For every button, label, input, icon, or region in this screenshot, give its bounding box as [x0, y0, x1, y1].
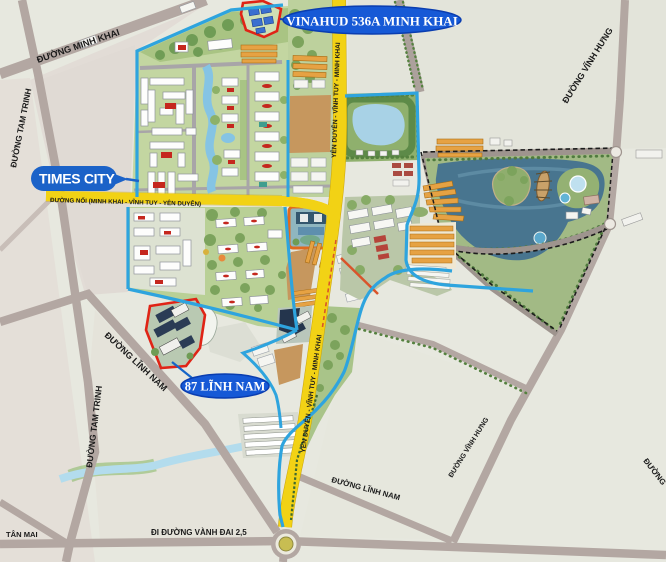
svg-text:VINAHUD 536A MINH KHAI: VINAHUD 536A MINH KHAI — [286, 14, 458, 29]
svg-text:ĐI ĐƯỜNG VÀNH ĐAI 2,5: ĐI ĐƯỜNG VÀNH ĐAI 2,5 — [151, 528, 247, 537]
svg-text:TÂN MAI: TÂN MAI — [6, 530, 38, 539]
svg-text:TIMES CITY: TIMES CITY — [39, 171, 116, 187]
svg-text:87 LĨNH NAM: 87 LĨNH NAM — [185, 380, 266, 394]
